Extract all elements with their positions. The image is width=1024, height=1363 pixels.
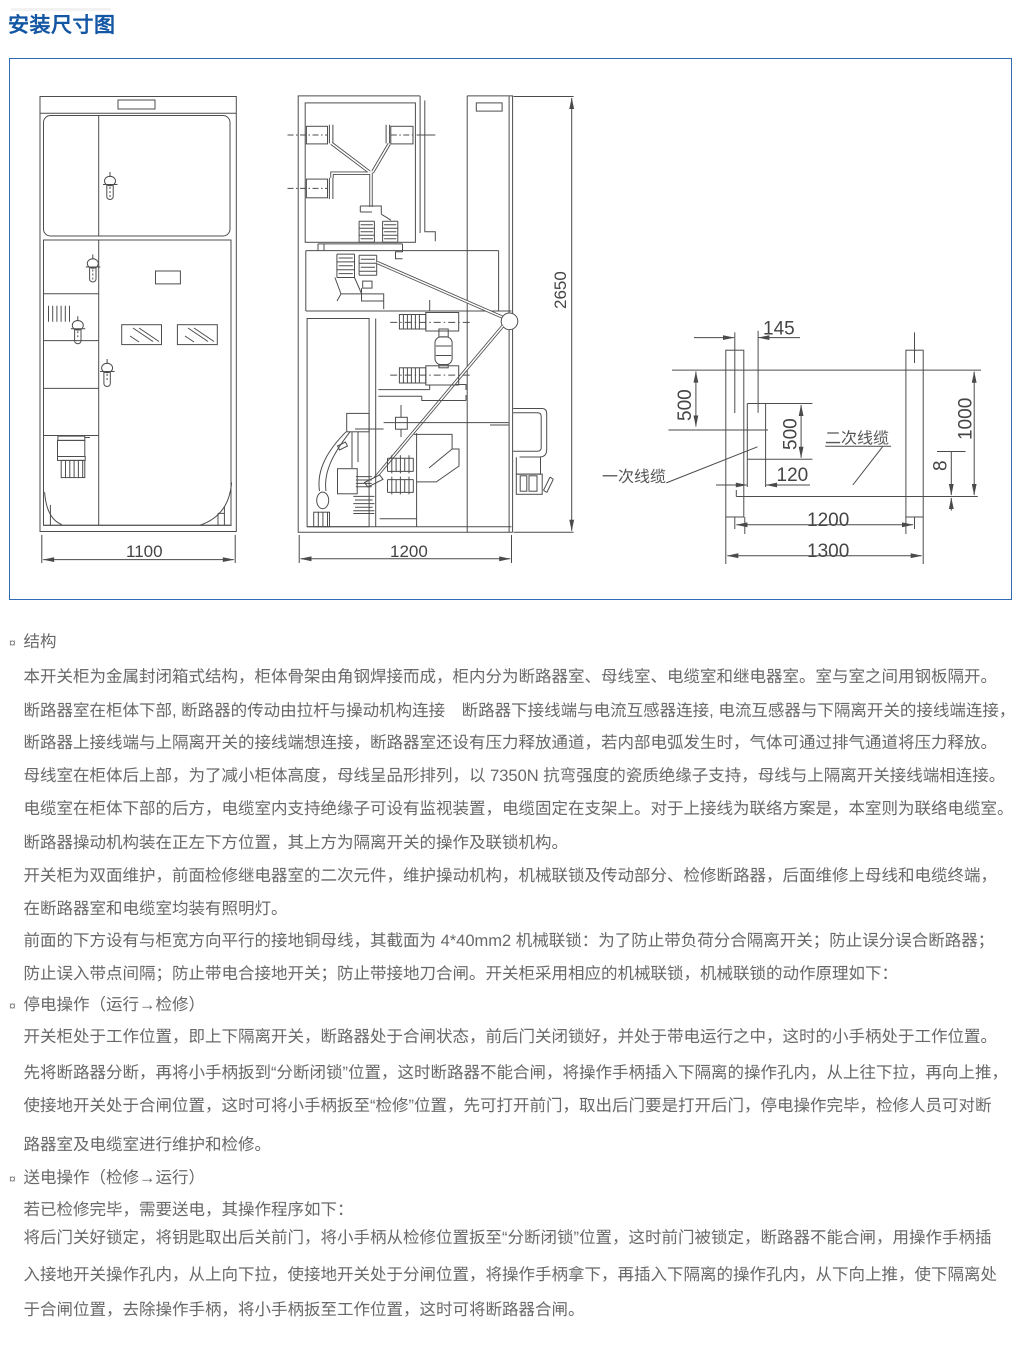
svg-text:2650: 2650 [551,271,570,309]
svg-text:120: 120 [777,465,809,486]
svg-text:1100: 1100 [126,542,163,561]
svg-text:145: 145 [763,319,795,340]
svg-text:二次线缆: 二次线缆 [825,430,889,448]
svg-text:500: 500 [675,389,696,421]
svg-text:1000: 1000 [956,398,977,440]
svg-text:1300: 1300 [807,541,849,562]
svg-text:1200: 1200 [807,510,849,531]
svg-text:1200: 1200 [390,542,428,561]
svg-text:一次线缆: 一次线缆 [602,468,666,486]
svg-text:8: 8 [931,460,952,471]
svg-text:500: 500 [781,418,802,450]
